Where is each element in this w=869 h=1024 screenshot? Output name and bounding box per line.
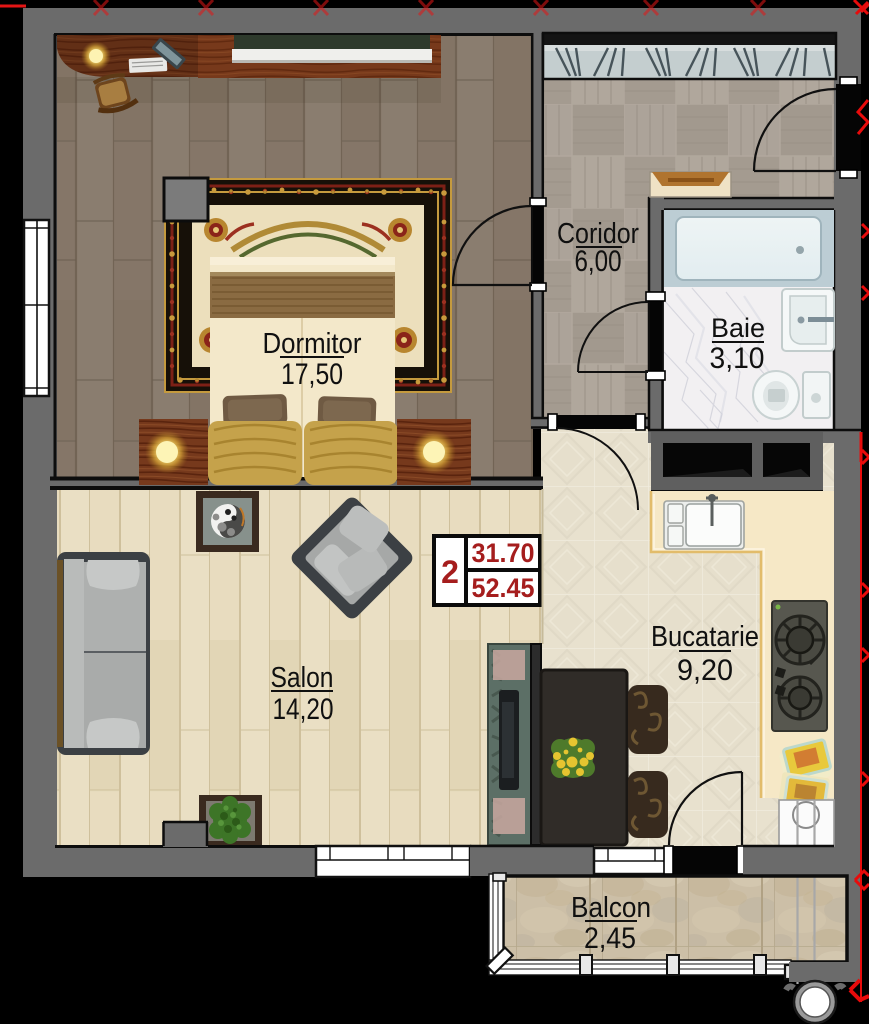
svg-text:2,45: 2,45 xyxy=(584,922,636,955)
svg-text:17,50: 17,50 xyxy=(281,358,343,391)
svg-text:Baie: Baie xyxy=(711,313,765,343)
svg-text:9,20: 9,20 xyxy=(677,654,733,687)
svg-text:Dormitor: Dormitor xyxy=(263,328,362,360)
svg-text:Balcon: Balcon xyxy=(571,892,651,924)
svg-text:14,20: 14,20 xyxy=(273,693,334,726)
svg-text:Salon: Salon xyxy=(271,662,334,694)
svg-text:2: 2 xyxy=(441,554,459,590)
svg-text:Bucatarie: Bucatarie xyxy=(651,621,759,653)
svg-text:6,00: 6,00 xyxy=(575,245,622,278)
svg-text:3,10: 3,10 xyxy=(710,342,765,375)
svg-text:31.70: 31.70 xyxy=(472,538,535,568)
svg-text:52.45: 52.45 xyxy=(472,573,535,603)
